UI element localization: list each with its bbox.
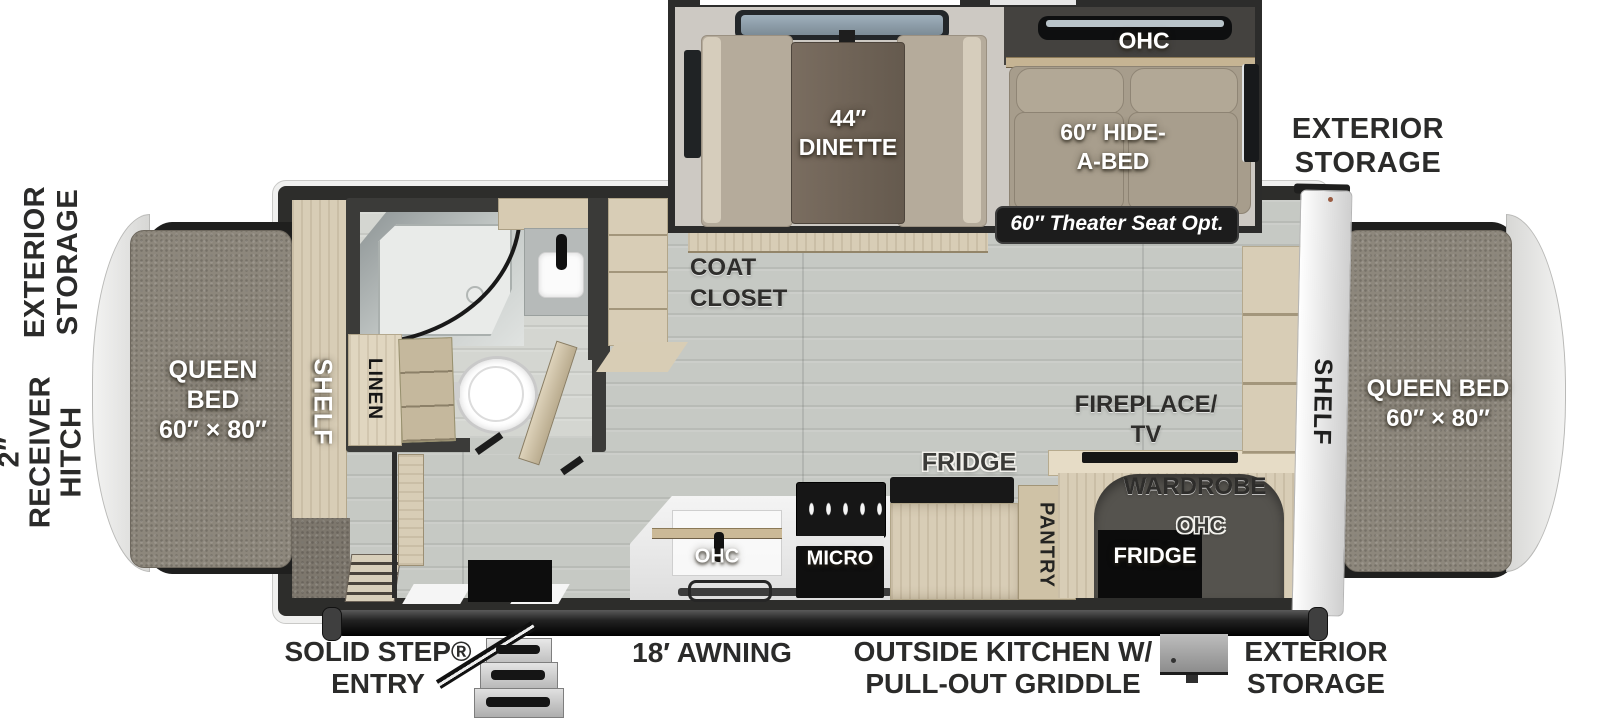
slide-right-window — [1242, 64, 1259, 162]
bath-faucet — [556, 234, 567, 270]
queen-bed-right-label: QUEEN BED 60″ × 80″ — [1367, 374, 1510, 434]
tall-cabinet — [1242, 246, 1302, 454]
toilet-seat — [468, 366, 524, 422]
coat-closet-label: COAT CLOSET — [690, 252, 787, 314]
tv-strip — [1082, 452, 1238, 463]
micro-label: MICRO — [807, 548, 874, 571]
pantry-label: PANTRY — [1035, 502, 1058, 588]
ohc-slide-label: OHC — [1118, 28, 1169, 55]
exterior-storage-box — [1160, 634, 1228, 675]
dinette-bench-right-edge — [963, 37, 981, 223]
awning-rail — [330, 610, 1320, 636]
entry-stair-tread-1 — [496, 645, 540, 654]
fridge-label: FRIDGE — [922, 449, 1016, 478]
ohc-window-glass — [1046, 20, 1224, 27]
label-exterior-storage-bottom-right: EXTERIOR STORAGE — [1244, 636, 1387, 700]
bath-vanity-cabinet — [398, 337, 456, 443]
shelf-left-label: SHELF — [308, 359, 337, 446]
dinette-bench-left-edge — [703, 37, 721, 223]
medicine-cabinet — [498, 198, 596, 230]
bed-deck-carpet — [292, 518, 350, 598]
sofa-back-cushion-1 — [1016, 68, 1124, 114]
hide-a-bed-label: 60″ HIDE- A-BED — [1060, 118, 1166, 176]
label-outside-kitchen: OUTSIDE KITCHEN W/ PULL-OUT GRIDDLE — [854, 636, 1153, 700]
wardrobe-ohc-label: OHC — [1177, 513, 1226, 539]
slide-top-strip-2 — [990, 0, 1076, 5]
entry-threshold-left — [402, 584, 472, 604]
queen-bed-left-label: QUEEN BED 60″ × 80″ — [159, 355, 267, 445]
awning-rail-cap-left — [322, 607, 342, 641]
bedroom-door-panel — [398, 454, 424, 566]
sofa-back-cushion-2 — [1130, 68, 1238, 114]
fridge-top — [890, 477, 1014, 504]
shelf-band-rivet — [1328, 197, 1333, 202]
label-solid-step-entry: SOLID STEP® ENTRY — [284, 636, 471, 700]
storage-box-latch — [1171, 658, 1176, 663]
slide-left-window — [684, 50, 701, 158]
fridge-cabinet — [890, 503, 1032, 600]
queen-bed-right-platform — [1506, 214, 1566, 572]
fireplace-tv-label: FIREPLACE/ TV — [1075, 390, 1218, 450]
label-receiver-hitch: 2″ RECEIVER HITCH — [0, 376, 88, 528]
slide-top-window-strip — [700, 0, 960, 5]
label-awning: 18′ AWNING — [632, 637, 792, 669]
coat-closet-cabinet — [608, 198, 668, 346]
kitchen-ohc-label: OHC — [695, 546, 739, 569]
wardrobe-label: WARDROBE — [1124, 473, 1267, 501]
shelf-right-label: SHELF — [1307, 358, 1338, 445]
floorplan-diagram: EXTERIOR STORAGE 2″ RECEIVER HITCH EXTER… — [0, 0, 1600, 720]
slide-threshold — [688, 233, 988, 253]
linen-label: LINEN — [363, 358, 385, 420]
closet-wall — [588, 198, 610, 360]
label-exterior-storage-top-right: EXTERIOR STORAGE — [1292, 112, 1444, 180]
entry-stair-tread-3 — [486, 697, 550, 707]
entry-step-box — [468, 560, 552, 602]
stove-counter-gap — [796, 536, 884, 546]
entry-stair-tread-2 — [491, 670, 545, 680]
theater-seat-badge: 60″ Theater Seat Opt. — [995, 206, 1239, 244]
stove — [796, 482, 886, 538]
kitchen-sink — [688, 580, 772, 602]
awning-rail-cap-right — [1308, 607, 1328, 641]
bedroom-doorway-wall — [392, 450, 397, 598]
dinette-label: 44″ DINETTE — [799, 104, 897, 162]
wardrobe-fridge-label: FRIDGE — [1113, 543, 1196, 569]
storage-box-foot — [1186, 675, 1198, 683]
label-exterior-storage-left: EXTERIOR STORAGE — [19, 186, 85, 338]
